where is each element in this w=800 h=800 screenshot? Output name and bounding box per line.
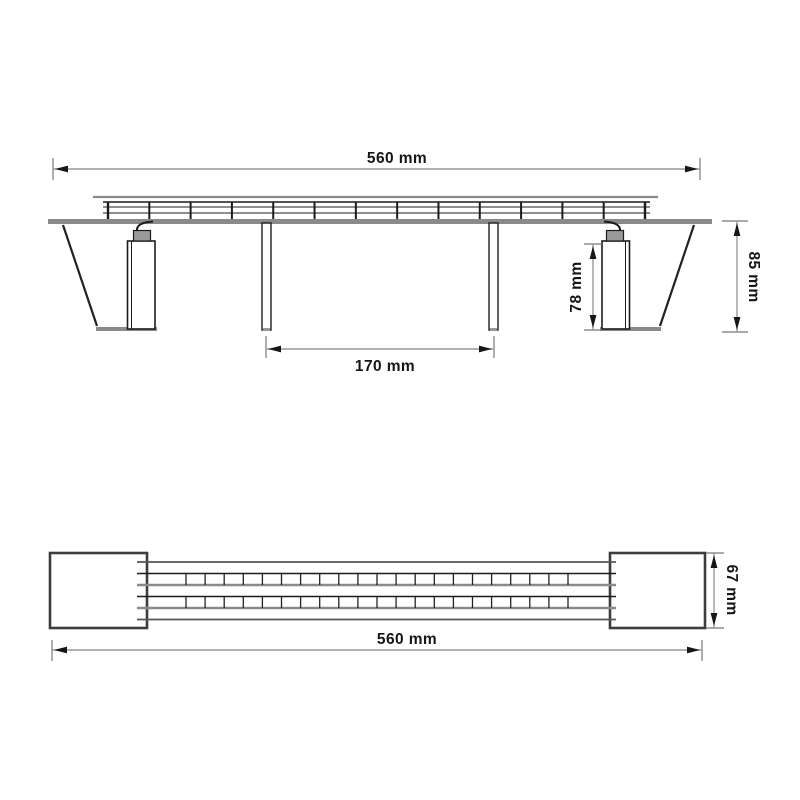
right-end-block bbox=[610, 553, 705, 628]
dimension-arrowhead bbox=[479, 346, 492, 353]
dimension-arrowhead bbox=[734, 317, 741, 330]
dimension-arrowhead bbox=[734, 223, 741, 236]
dimension-arrowhead bbox=[711, 613, 718, 626]
plan-view: 67 mm 560 mm bbox=[50, 553, 740, 661]
bridge-deck bbox=[48, 197, 712, 222]
dimension-arrowhead bbox=[55, 166, 68, 173]
right-abutment bbox=[600, 222, 694, 330]
right-bearing-block bbox=[607, 231, 624, 242]
left-end-block bbox=[50, 553, 147, 628]
dimension-center-span: 170 mm bbox=[266, 336, 494, 375]
railing-posts bbox=[108, 202, 645, 221]
dimension-label-overall-width-top: 560 mm bbox=[367, 150, 427, 167]
dimension-arrowhead bbox=[687, 647, 700, 654]
left-abutment bbox=[63, 222, 157, 330]
dimension-label-overall-width-bottom: 560 mm bbox=[377, 631, 437, 648]
dimension-pier-height: 78 mm bbox=[568, 244, 602, 330]
dimension-overall-width-top: 560 mm bbox=[53, 150, 700, 180]
abutment-left-slope bbox=[63, 225, 97, 326]
dimension-arrowhead bbox=[590, 315, 597, 328]
dimension-label-center-span: 170 mm bbox=[355, 358, 415, 375]
center-pier-left bbox=[262, 223, 271, 330]
side-elevation-view: 560 mm bbox=[48, 150, 762, 375]
dimension-arrowhead bbox=[685, 166, 698, 173]
track-ties bbox=[186, 574, 568, 609]
dimension-arrowhead bbox=[590, 246, 597, 259]
drawing-canvas: 560 mm bbox=[0, 0, 800, 800]
dimension-label-pier-height: 78 mm bbox=[568, 261, 585, 312]
dimension-arrowhead bbox=[54, 647, 67, 654]
dimension-deck-width: 67 mm bbox=[706, 553, 740, 628]
dimension-overall-height: 85 mm bbox=[722, 221, 762, 332]
dimension-arrowhead bbox=[711, 555, 718, 568]
abutment-right-slope bbox=[660, 225, 694, 326]
deck-plan-lines bbox=[137, 562, 616, 620]
dimension-overall-width-bottom: 560 mm bbox=[52, 631, 702, 661]
dimension-label-deck-width: 67 mm bbox=[723, 564, 740, 615]
center-piers bbox=[262, 223, 498, 330]
dimension-label-overall-height: 85 mm bbox=[745, 251, 762, 302]
center-pier-right bbox=[489, 223, 498, 330]
dimension-arrowhead bbox=[268, 346, 281, 353]
bridge-technical-drawing: 560 mm bbox=[0, 0, 800, 800]
left-bearing-block bbox=[134, 231, 151, 242]
